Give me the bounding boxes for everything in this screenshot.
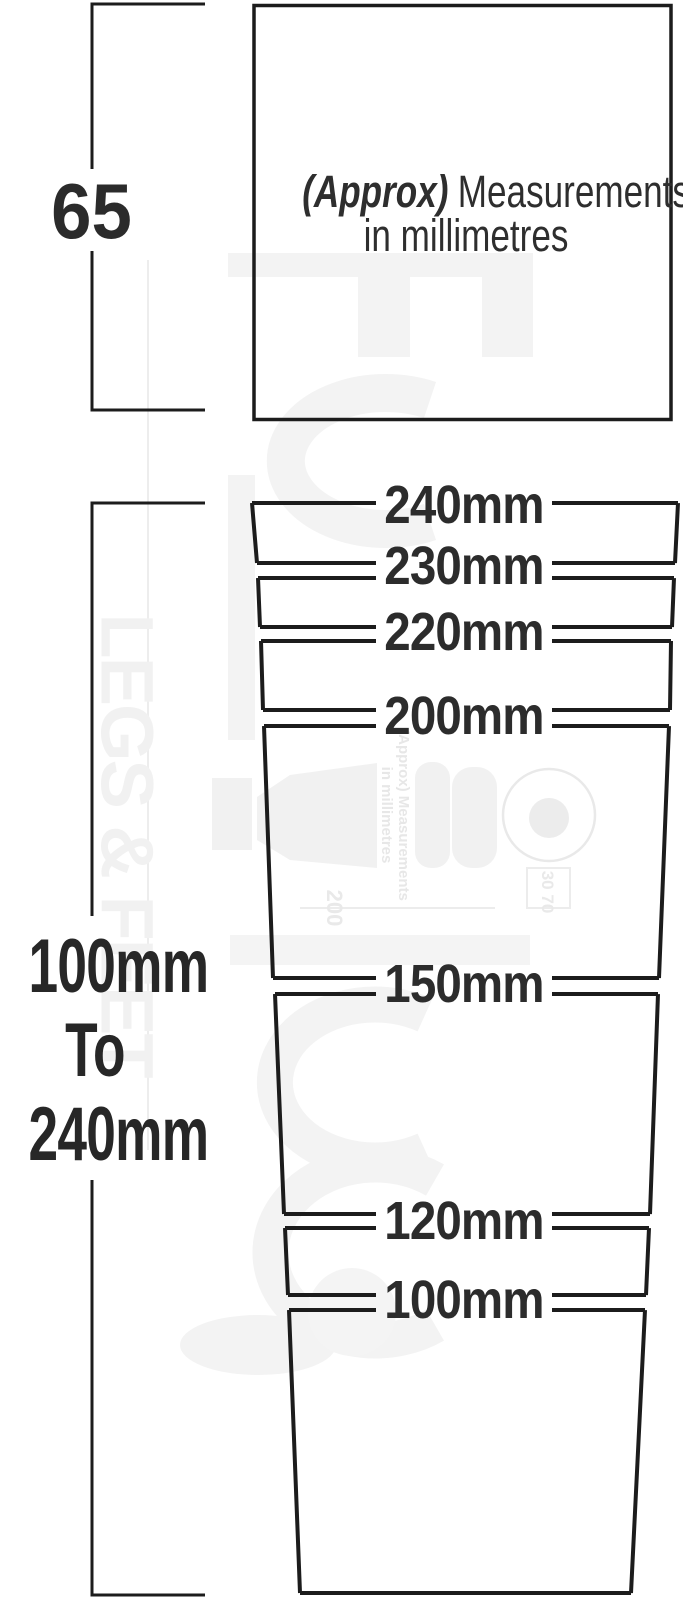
dimension-label-range: 100mm To 240mm <box>29 925 162 1177</box>
size-label-150mm: 150mm <box>354 954 574 1014</box>
size-label-100mm: 100mm <box>354 1270 574 1330</box>
leg-segment-150 <box>275 994 658 1214</box>
caption-line1: (Approx)Measurements <box>302 170 630 214</box>
range-line-100mm: 100mm <box>29 925 162 1009</box>
caption-line2: in millimetres <box>302 214 630 258</box>
dimension-label-65: 65 <box>6 166 176 256</box>
size-label-200mm: 200mm <box>354 686 574 746</box>
size-label-220mm: 220mm <box>354 602 574 662</box>
size-label-120mm: 120mm <box>354 1191 574 1251</box>
range-line-240mm: 240mm <box>29 1093 162 1177</box>
size-label-240mm: 240mm <box>354 475 574 535</box>
diagram-canvas: LEGS & FEET (Approx) Measurements in mil… <box>0 0 683 1600</box>
size-label-230mm: 230mm <box>354 536 574 596</box>
leg-segment-200 <box>264 726 669 978</box>
range-line-to: To <box>29 1009 162 1093</box>
info-box-caption: (Approx)Measurements in millimetres <box>256 170 676 258</box>
leg-segment-100 <box>289 1310 645 1593</box>
